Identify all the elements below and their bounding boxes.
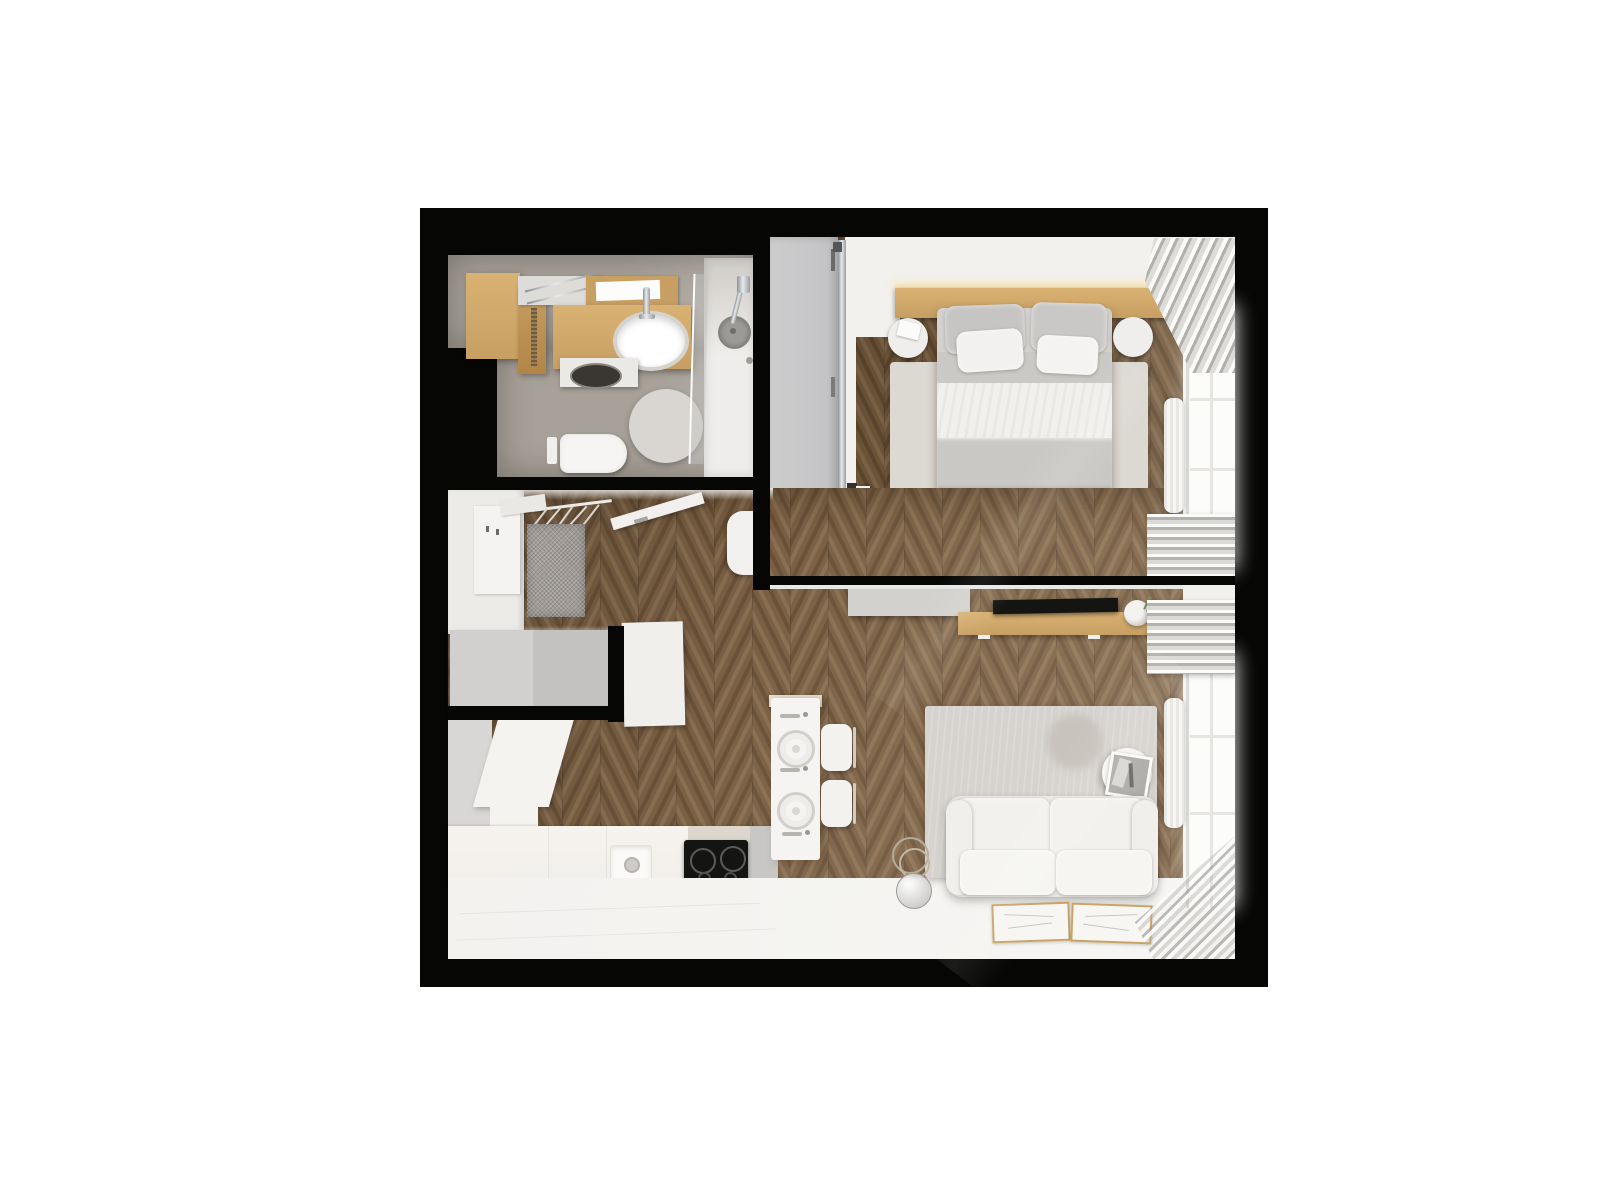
wall — [608, 626, 624, 722]
cutlery-icon — [780, 714, 800, 718]
dining-chair — [821, 724, 852, 771]
tv-console — [958, 612, 1152, 635]
window-frame-edge — [1186, 652, 1189, 908]
cutlery-icon — [782, 832, 802, 836]
cutlery-icon — [780, 768, 800, 772]
mirror-glass — [596, 280, 661, 301]
curtain — [1147, 514, 1235, 578]
shower-head-icon — [730, 328, 736, 334]
radiator — [1164, 398, 1184, 513]
cutting-board — [688, 826, 750, 841]
wardrobe-handle-icon — [831, 249, 835, 271]
wall — [753, 208, 770, 590]
plate-icon — [777, 730, 815, 768]
console-foot-icon — [978, 635, 990, 639]
rug-shadow — [1047, 714, 1103, 770]
floor-lamp-globe — [896, 873, 932, 909]
wall — [420, 477, 770, 490]
sink-drain-icon — [624, 857, 640, 873]
sheet — [937, 383, 1112, 438]
sofa-seat-cushion — [1056, 850, 1152, 895]
sofa-seat-cushion — [960, 850, 1056, 895]
dining-chair — [821, 780, 852, 827]
kitchen-tall-cabinet — [622, 621, 686, 727]
window-mullion — [1190, 735, 1235, 738]
toilet — [560, 434, 627, 473]
blanket — [937, 438, 1112, 489]
tv — [993, 598, 1118, 615]
doormat — [527, 524, 585, 617]
entry-closet — [450, 630, 610, 712]
wardrobe-handle-icon — [831, 377, 835, 397]
cabinet-vent-icon — [531, 308, 537, 366]
wall — [753, 576, 1235, 585]
plate-icon — [777, 792, 815, 830]
window-mullion — [1190, 812, 1235, 815]
floor-plan-page — [0, 0, 1600, 1200]
apartment-floor-plan — [420, 208, 1268, 987]
door-handle-icon — [496, 529, 499, 535]
entry-door — [474, 506, 520, 594]
bathroom-cabinet — [466, 273, 520, 359]
shower-drain-icon — [746, 357, 753, 364]
laundry-basket — [570, 363, 622, 389]
burner-icon — [690, 848, 716, 874]
sofa — [946, 796, 1158, 897]
flush-plate — [547, 437, 557, 464]
wall — [448, 706, 624, 720]
pillow-small-left — [956, 328, 1025, 374]
photo-frame — [1105, 751, 1153, 801]
chair-back-icon — [853, 783, 856, 824]
console-foot-icon — [1088, 635, 1100, 639]
burner-icon — [720, 846, 746, 872]
window-mullion — [1190, 468, 1235, 471]
nightstand-right — [1113, 317, 1153, 357]
cutlery-icon — [803, 712, 808, 717]
chair-back-icon — [853, 727, 856, 768]
window-mullion — [1190, 398, 1235, 401]
floor-mat — [991, 902, 1070, 944]
cutlery-icon — [805, 830, 810, 835]
curtain — [1147, 600, 1235, 674]
shower-valve-icon — [737, 276, 750, 293]
faucet-icon — [639, 314, 655, 319]
sideboard — [848, 589, 970, 616]
skirting — [753, 585, 1235, 589]
door-handle-icon — [486, 526, 489, 532]
wardrobe-handle-icon — [833, 242, 842, 252]
pillow-small-right — [1036, 334, 1099, 375]
cutlery-icon — [803, 766, 808, 771]
radiator — [1164, 698, 1184, 828]
